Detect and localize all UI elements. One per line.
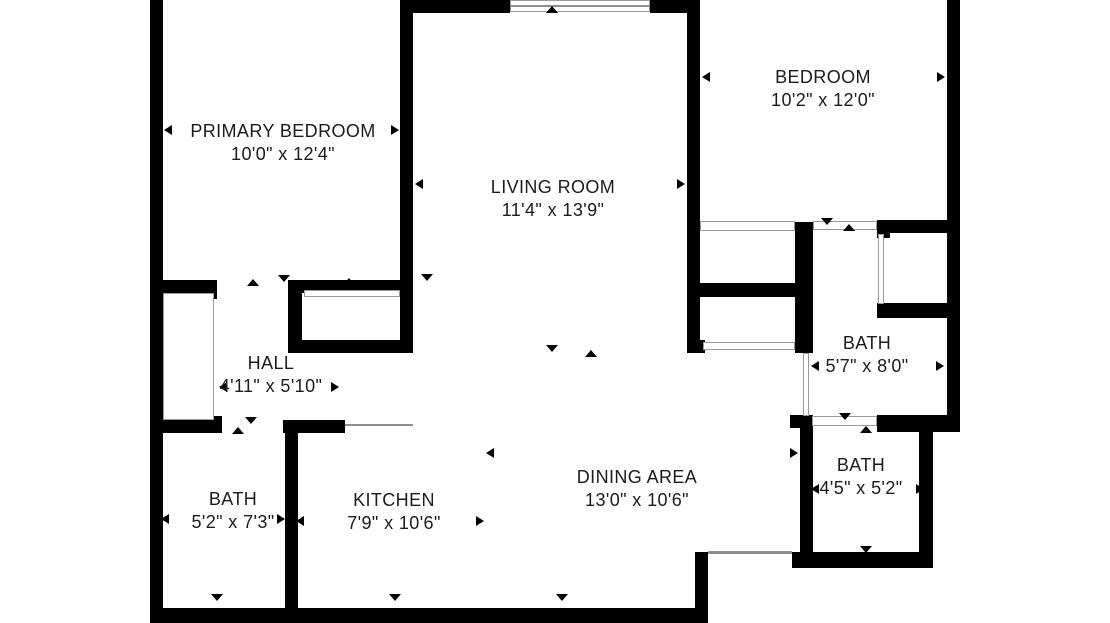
room-dimensions: 5'7" x 8'0" — [825, 355, 908, 378]
dimension-arrow-right-icon — [331, 382, 339, 392]
wall — [400, 0, 413, 353]
room-dimensions: 13'0" x 10'6" — [577, 489, 697, 512]
room-name: HALL — [220, 352, 323, 375]
room-name: LIVING ROOM — [491, 176, 615, 199]
room-dimensions: 5'2" x 7'3" — [191, 511, 274, 534]
room-label-bedroom: BEDROOM10'2" x 12'0" — [771, 66, 875, 112]
room-name: KITCHEN — [347, 489, 441, 512]
opening-marker-down-icon — [389, 594, 401, 601]
room-label-living-room: LIVING ROOM11'4" x 13'9" — [491, 176, 615, 222]
room-dimensions: 4'11" x 5'10" — [220, 375, 323, 398]
top-window-glass — [510, 5, 650, 7]
wall — [400, 0, 510, 13]
room-dimensions: 10'0" x 12'4" — [190, 143, 375, 166]
dimension-arrow-right-icon — [476, 516, 484, 526]
opening-marker-down-icon — [278, 275, 290, 282]
patio-slider — [708, 551, 792, 554]
wall — [877, 303, 947, 318]
opening-marker-up-icon — [247, 279, 259, 286]
dimension-arrow-right-icon — [937, 72, 945, 82]
opening-marker-up-icon — [860, 426, 872, 433]
opening-marker-up-icon — [232, 427, 244, 434]
opening-marker-down-icon — [421, 274, 433, 281]
opening-marker-down-icon — [546, 345, 558, 352]
wall — [695, 552, 708, 612]
dimension-arrow-left-icon — [296, 516, 304, 526]
counter-line — [345, 424, 413, 426]
dimension-arrow-left-icon — [486, 448, 494, 458]
room-name: BATH — [819, 454, 902, 477]
wall — [150, 0, 163, 623]
opening-marker-down-icon — [821, 218, 833, 225]
dimension-arrow-right-icon — [790, 448, 798, 458]
opening-marker-up-icon — [546, 6, 558, 13]
room-name: BATH — [191, 488, 274, 511]
hall-closet-doors — [703, 342, 795, 350]
floorplan-canvas: PRIMARY BEDROOM10'0" x 12'4"BEDROOM10'2"… — [0, 0, 1110, 623]
bedroom-closet-doors — [700, 221, 795, 231]
dimension-arrow-right-icon — [916, 484, 924, 494]
room-label-kitchen: KITCHEN7'9" x 10'6" — [347, 489, 441, 535]
opening-marker-up-icon — [343, 278, 355, 285]
room-label-dining-area: DINING AREA13'0" x 10'6" — [577, 466, 697, 512]
room-label-primary-bedroom: PRIMARY BEDROOM10'0" x 12'4" — [190, 120, 375, 166]
bath-pocket-door — [803, 353, 809, 416]
primary-closet-doors — [304, 290, 400, 297]
hall-closet — [163, 293, 214, 420]
room-dimensions: 7'9" x 10'6" — [347, 512, 441, 535]
opening-marker-down-icon — [556, 594, 568, 601]
opening-marker-up-icon — [585, 350, 597, 357]
wall — [285, 420, 298, 610]
dimension-arrow-left-icon — [702, 72, 710, 82]
room-name: BATH — [825, 332, 908, 355]
dimension-arrow-left-icon — [811, 361, 819, 371]
room-label-bath-2: BATH5'7" x 8'0" — [825, 332, 908, 378]
room-dimensions: 11'4" x 13'9" — [491, 199, 615, 222]
opening-marker-down-icon — [839, 413, 851, 420]
wall — [687, 283, 813, 297]
dimension-arrow-right-icon — [936, 361, 944, 371]
room-label-bath-3: BATH4'5" x 5'2" — [819, 454, 902, 500]
room-label-bath-1: BATH5'2" x 7'3" — [191, 488, 274, 534]
opening-marker-up-icon — [843, 224, 855, 231]
wall — [947, 0, 960, 431]
room-name: PRIMARY BEDROOM — [190, 120, 375, 143]
wall — [150, 608, 708, 623]
wall — [687, 0, 700, 353]
room-label-hall: HALL4'11" x 5'10" — [220, 352, 323, 398]
dimension-arrow-right-icon — [391, 125, 399, 135]
room-dimensions: 10'2" x 12'0" — [771, 89, 875, 112]
wall — [790, 415, 803, 428]
shower-glass — [878, 234, 884, 304]
opening-marker-down-icon — [860, 546, 872, 553]
wall — [792, 552, 933, 568]
dimension-arrow-left-icon — [164, 125, 172, 135]
opening-marker-down-icon — [245, 417, 257, 424]
dimension-arrow-right-icon — [677, 179, 685, 189]
dimension-arrow-left-icon — [415, 179, 423, 189]
dimension-arrow-left-icon — [161, 514, 169, 524]
room-name: BEDROOM — [771, 66, 875, 89]
room-name: DINING AREA — [577, 466, 697, 489]
opening-marker-down-icon — [211, 594, 223, 601]
room-dimensions: 4'5" x 5'2" — [819, 477, 902, 500]
dimension-arrow-right-icon — [277, 514, 285, 524]
dimension-arrow-left-icon — [811, 484, 819, 494]
